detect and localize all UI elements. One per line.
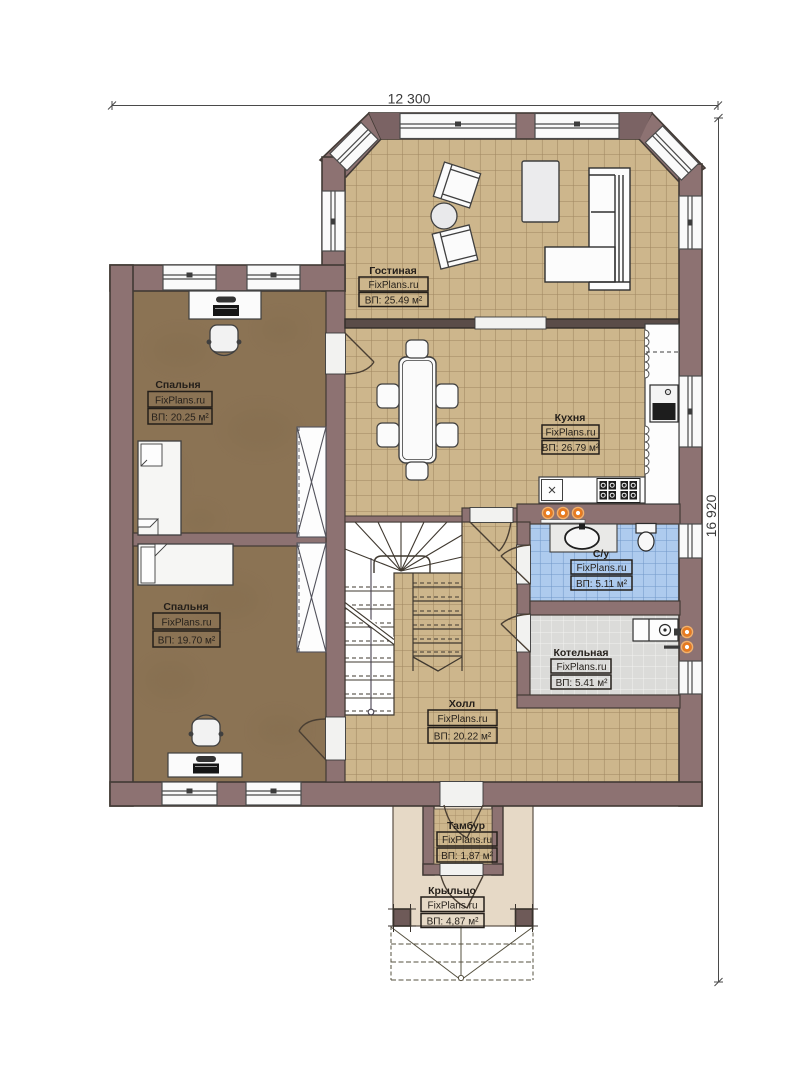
svg-text:Спальня: Спальня bbox=[163, 601, 208, 613]
svg-text:FixPlans.ru: FixPlans.ru bbox=[161, 618, 211, 629]
svg-text:16 920: 16 920 bbox=[703, 494, 719, 537]
svg-text:С/у: С/у bbox=[593, 548, 610, 560]
svg-text:Гостиная: Гостиная bbox=[369, 265, 416, 277]
svg-text:Котельная: Котельная bbox=[554, 647, 609, 659]
svg-text:Тамбур: Тамбур bbox=[447, 820, 485, 832]
svg-text:ВП: 19.70 м²: ВП: 19.70 м² bbox=[158, 636, 216, 647]
svg-text:FixPlans.ru: FixPlans.ru bbox=[556, 662, 606, 673]
svg-text:ВП: 26.79 м²: ВП: 26.79 м² bbox=[542, 443, 600, 454]
svg-text:ВП: 4,87 м²: ВП: 4,87 м² bbox=[427, 917, 480, 928]
svg-text:FixPlans.ru: FixPlans.ru bbox=[155, 396, 205, 407]
svg-text:FixPlans.ru: FixPlans.ru bbox=[427, 901, 477, 912]
svg-text:Крыльцо: Крыльцо bbox=[428, 885, 476, 897]
svg-text:ВП: 1,87 м²: ВП: 1,87 м² bbox=[441, 851, 494, 862]
svg-text:FixPlans.ru: FixPlans.ru bbox=[368, 280, 418, 291]
svg-text:Спальня: Спальня bbox=[155, 379, 200, 391]
svg-text:ВП: 5.41 м²: ВП: 5.41 м² bbox=[556, 678, 609, 689]
svg-text:FixPlans.ru: FixPlans.ru bbox=[442, 835, 492, 846]
svg-text:ВП: 20.25 м²: ВП: 20.25 м² bbox=[151, 413, 209, 424]
svg-text:FixPlans.ru: FixPlans.ru bbox=[437, 714, 487, 725]
svg-text:FixPlans.ru: FixPlans.ru bbox=[576, 563, 626, 574]
svg-text:ВП: 20.22 м²: ВП: 20.22 м² bbox=[434, 732, 492, 743]
svg-text:Кухня: Кухня bbox=[555, 412, 586, 424]
svg-text:ВП: 25.49 м²: ВП: 25.49 м² bbox=[365, 296, 423, 307]
svg-text:12 300: 12 300 bbox=[388, 91, 431, 107]
svg-text:ВП: 5.11 м²: ВП: 5.11 м² bbox=[576, 579, 628, 590]
svg-text:Холл: Холл bbox=[449, 698, 475, 710]
svg-text:FixPlans.ru: FixPlans.ru bbox=[545, 428, 595, 439]
